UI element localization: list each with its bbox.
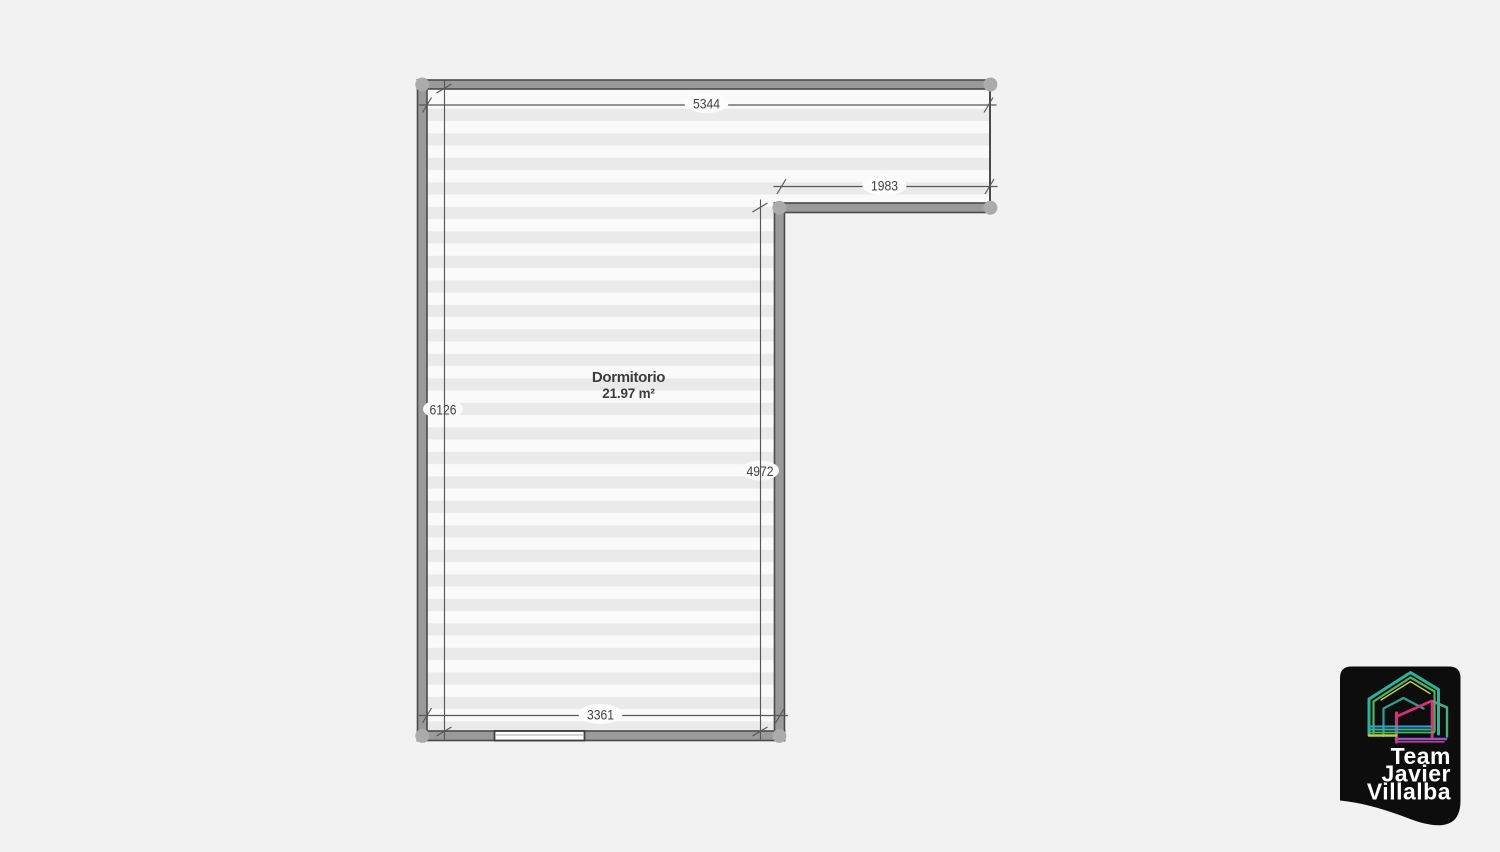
- svg-text:3361: 3361: [587, 707, 614, 723]
- svg-text:5344: 5344: [693, 95, 720, 111]
- svg-text:6126: 6126: [430, 401, 457, 417]
- svg-text:1983: 1983: [871, 178, 898, 194]
- svg-text:21.97 m²: 21.97 m²: [602, 386, 655, 401]
- svg-text:4972: 4972: [747, 463, 774, 479]
- svg-text:Dormitorio: Dormitorio: [592, 369, 665, 386]
- svg-text:Villalba: Villalba: [1367, 779, 1451, 805]
